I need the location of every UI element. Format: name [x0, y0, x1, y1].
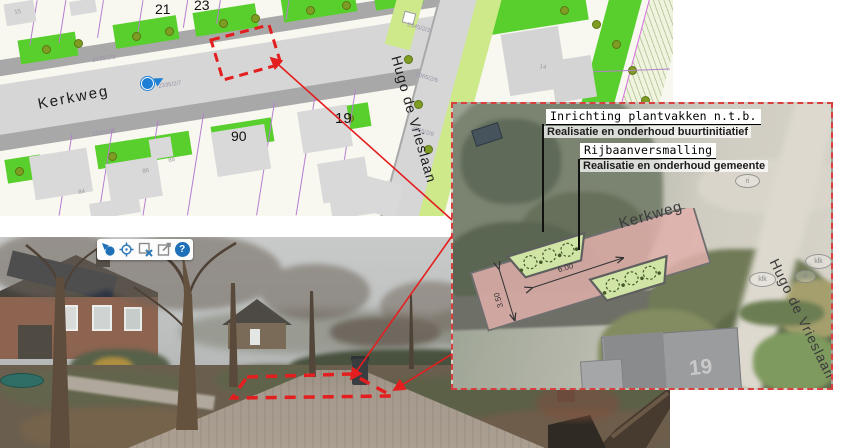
save-frame-icon[interactable]	[137, 242, 153, 258]
viewpoint-icon[interactable]	[100, 242, 116, 258]
symbol-badge: ri	[795, 270, 816, 283]
detail-plan-panel: 19 ri klk klk ri 6.00 3.50	[451, 102, 833, 390]
parcel-line	[183, 0, 188, 28]
symbol-badge: klk	[805, 254, 832, 269]
tree-dot	[132, 32, 141, 41]
tree-dot	[219, 19, 228, 28]
house-number-88: 88	[168, 157, 176, 164]
tree-dot	[108, 152, 117, 161]
panel-house-number-19: 19	[688, 355, 714, 381]
waste-bin	[352, 359, 368, 385]
house-number-84: 84	[78, 189, 86, 196]
open-external-icon[interactable]	[156, 242, 172, 258]
parcel-line	[97, 0, 104, 38]
building	[89, 196, 141, 216]
tree-dot	[592, 20, 601, 29]
aerial-building-wing	[580, 359, 624, 390]
help-icon[interactable]: ?	[175, 242, 190, 257]
tree-dot	[15, 167, 24, 176]
house-number-15: 15	[14, 9, 22, 16]
tree-dot	[74, 39, 83, 48]
house-number-14: 14	[539, 64, 547, 71]
tree-dot	[42, 45, 51, 54]
page-root: { "map": { "street_kerkweg": "Kerkweg", …	[0, 0, 847, 448]
house-number-90: 90	[231, 128, 247, 144]
symbol-badge: ri	[735, 174, 760, 188]
leader-line-plantvakken	[542, 124, 544, 232]
house-number-21: 21	[155, 1, 171, 17]
callout-rijbaan-sub: Realisatie en onderhoud gemeente	[580, 160, 768, 172]
tree-dot	[251, 14, 260, 23]
building	[149, 136, 174, 159]
plan-drawing: 6.00 3.50	[467, 208, 737, 338]
leader-line-rijbaan	[578, 159, 580, 250]
tree-dot	[612, 40, 621, 49]
house-number-23: 23	[194, 0, 210, 13]
building-14-wing	[549, 55, 597, 103]
building	[69, 0, 97, 16]
callout-rijbaan-title: Rijbaanversmalling	[580, 143, 716, 159]
center-target-icon[interactable]	[119, 242, 135, 258]
house-number-86: 86	[142, 168, 150, 175]
callout-plantvakken-title: Inrichting plantvakken n.t.b.	[546, 109, 761, 125]
parcel-line	[187, 114, 204, 216]
callout-plantvakken-sub: Realisatie en onderhoud buurtinitiatief	[544, 126, 751, 138]
tree-dot	[165, 27, 174, 36]
tree-dot	[342, 1, 351, 10]
house-number-19: 19	[335, 110, 352, 127]
tree-dot	[560, 6, 569, 15]
camera-position-marker	[141, 77, 154, 90]
photo-toolbar: ?	[97, 239, 193, 260]
tree-dot	[306, 6, 315, 15]
